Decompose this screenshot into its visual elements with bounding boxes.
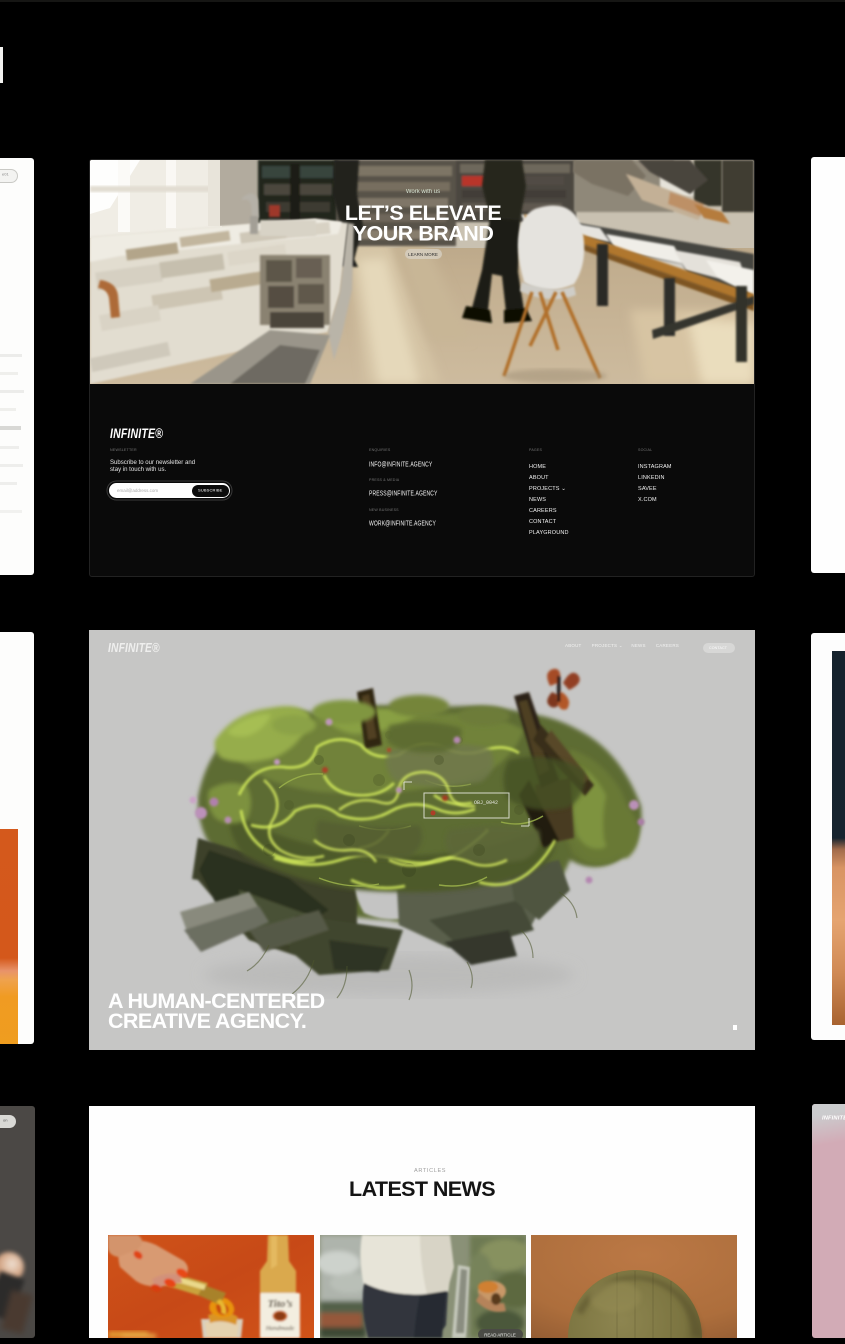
svg-text:LEARN MORE: LEARN MORE <box>408 252 438 257</box>
svg-text:Handmade: Handmade <box>265 1325 295 1332</box>
svg-text:Work with us: Work with us <box>406 189 440 195</box>
svg-text:YOUR BRAND: YOUR BRAND <box>353 222 494 246</box>
svg-text:READ ARTICLE: READ ARTICLE <box>484 1333 516 1338</box>
svg-text:OBJ_0042: OBJ_0042 <box>474 800 498 806</box>
svg-text:Tito’s: Tito’s <box>267 1298 292 1310</box>
